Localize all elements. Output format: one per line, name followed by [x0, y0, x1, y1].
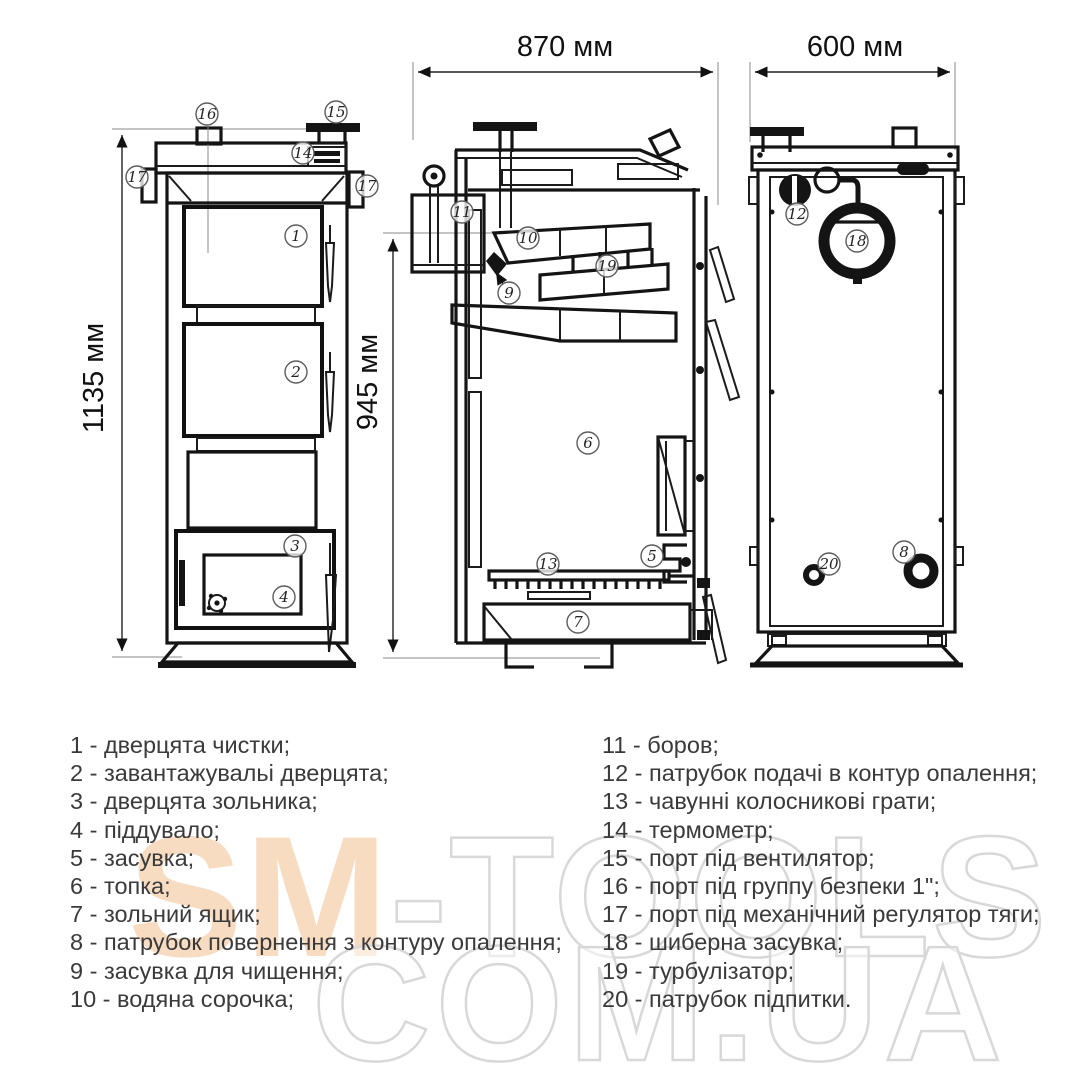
callout-12: 12 [786, 203, 808, 225]
ash-door [176, 531, 336, 652]
legend-item-8: 8 - патрубок повернення з контуру опален… [70, 928, 562, 956]
rear-wall-and-hinges [694, 188, 739, 663]
front-view-drawing: 1135 мм [78, 101, 378, 668]
svg-text:5: 5 [647, 547, 657, 565]
legend-item-17: 17 - порт під механічний регулятор тяги; [602, 900, 1040, 928]
callout-11: 11 [451, 201, 473, 223]
svg-text:19: 19 [597, 257, 617, 275]
ash-box [484, 604, 712, 640]
back-width-dimension: 600 мм [807, 31, 903, 63]
svg-text:11: 11 [452, 203, 471, 221]
legend-item-20: 20 - патрубок підпитки. [602, 985, 1040, 1013]
callout-5: 5 [641, 545, 663, 567]
legend-item-14: 14 - термометр; [602, 816, 1040, 844]
vent-slot [897, 163, 929, 175]
callout-6: 6 [577, 432, 599, 454]
flue-box [412, 166, 484, 272]
legend-right-column: 11 - боров; 12 - патрубок подачі в конту… [602, 731, 1040, 1013]
flue-outlet-stub [650, 130, 679, 156]
svg-text:12: 12 [787, 205, 806, 223]
svg-text:16: 16 [197, 105, 217, 123]
legend-item-5: 5 - засувка; [70, 844, 562, 872]
shutter-damper [815, 168, 890, 284]
legend-item-1: 1 - дверцята чистки; [70, 731, 562, 759]
side-legs [506, 643, 612, 667]
front-boiler-body [142, 123, 363, 668]
front-height-dimension: 1135 мм [78, 323, 110, 433]
callout-10: 10 [517, 227, 539, 249]
callout-19: 19 [596, 255, 618, 277]
callout-2: 2 [285, 361, 307, 383]
legend-item-18: 18 - шиберна засувка; [602, 928, 1040, 956]
legend-item-16: 16 - порт під группу безпеки 1"; [602, 872, 1040, 900]
legend-item-4: 4 - піддувало; [70, 816, 562, 844]
svg-text:3: 3 [290, 537, 300, 555]
callout-7: 7 [567, 611, 589, 633]
svg-text:14: 14 [293, 144, 312, 162]
svg-text:2: 2 [290, 363, 301, 381]
rear-view-drawing: 600 мм [749, 31, 964, 665]
callout-13: 13 [537, 553, 559, 575]
svg-text:4: 4 [278, 588, 289, 606]
svg-text:6: 6 [583, 434, 593, 452]
svg-text:13: 13 [538, 555, 557, 573]
callout-8: 8 [893, 541, 915, 563]
svg-text:1: 1 [291, 227, 301, 245]
side-width-dimension: 870 мм [517, 31, 613, 63]
legend-item-9: 9 - засувка для чищення; [70, 957, 562, 985]
callout-18: 18 [846, 230, 868, 252]
legend-item-7: 7 - зольний ящик; [70, 900, 562, 928]
legend-item-2: 2 - завантажувальі дверцята; [70, 759, 562, 787]
lower-gas-channel [452, 305, 676, 341]
safety-group-port [473, 122, 537, 131]
callout-17-left: 17 [126, 166, 148, 188]
legend-item-13: 13 - чавунні колосникові грати; [602, 787, 1040, 815]
svg-text:9: 9 [504, 284, 514, 302]
callout-3: 3 [284, 535, 306, 557]
rear-pedestal [756, 646, 958, 663]
legend-left-column: 1 - дверцята чистки; 2 - завантажувальі … [70, 731, 562, 1013]
callout-1: 1 [285, 225, 307, 247]
rear-boiler-body [749, 127, 964, 665]
loading-door [184, 324, 334, 436]
side-height-dimension: 945 мм [352, 334, 384, 430]
rear-door-section [658, 437, 694, 535]
legend-item-19: 19 - турбулізатор; [602, 957, 1040, 985]
callout-20: 20 [818, 553, 840, 575]
svg-text:8: 8 [899, 543, 909, 561]
side-view-drawing: 870 мм 945 мм [352, 31, 739, 667]
legend-item-6: 6 - топка; [70, 872, 562, 900]
svg-text:15: 15 [326, 103, 345, 121]
air-rosette [207, 594, 227, 613]
cleaning-door [184, 207, 334, 306]
svg-text:20: 20 [818, 555, 839, 573]
callout-17-right: 17 [356, 175, 378, 197]
legend-item-12: 12 - патрубок подачі в контур опалення; [602, 759, 1040, 787]
callout-15: 15 [325, 101, 347, 123]
callout-9: 9 [498, 282, 520, 304]
callout-14: 14 [292, 142, 314, 164]
legend-item-3: 3 - дверцята зольника; [70, 787, 562, 815]
return-port [908, 558, 934, 584]
supply-port [779, 174, 811, 206]
callout-16: 16 [196, 103, 218, 125]
boiler-technical-drawing: 1135 мм [0, 0, 1080, 700]
fan-port-flange [306, 123, 360, 132]
legend-item-10: 10 - водяна сорочка; [70, 985, 562, 1013]
boiler-diagram-page: SM-TOOLS COM.UA 1135 мм [0, 0, 1080, 1080]
svg-text:17: 17 [127, 168, 147, 186]
callout-4: 4 [273, 586, 295, 608]
svg-text:17: 17 [357, 177, 377, 195]
legend-item-15: 15 - порт під вентилятор; [602, 844, 1040, 872]
front-pedestal [162, 643, 352, 662]
svg-text:7: 7 [573, 613, 583, 631]
legend-item-11: 11 - боров; [602, 731, 1040, 759]
svg-text:18: 18 [847, 232, 866, 250]
svg-text:10: 10 [518, 229, 538, 247]
